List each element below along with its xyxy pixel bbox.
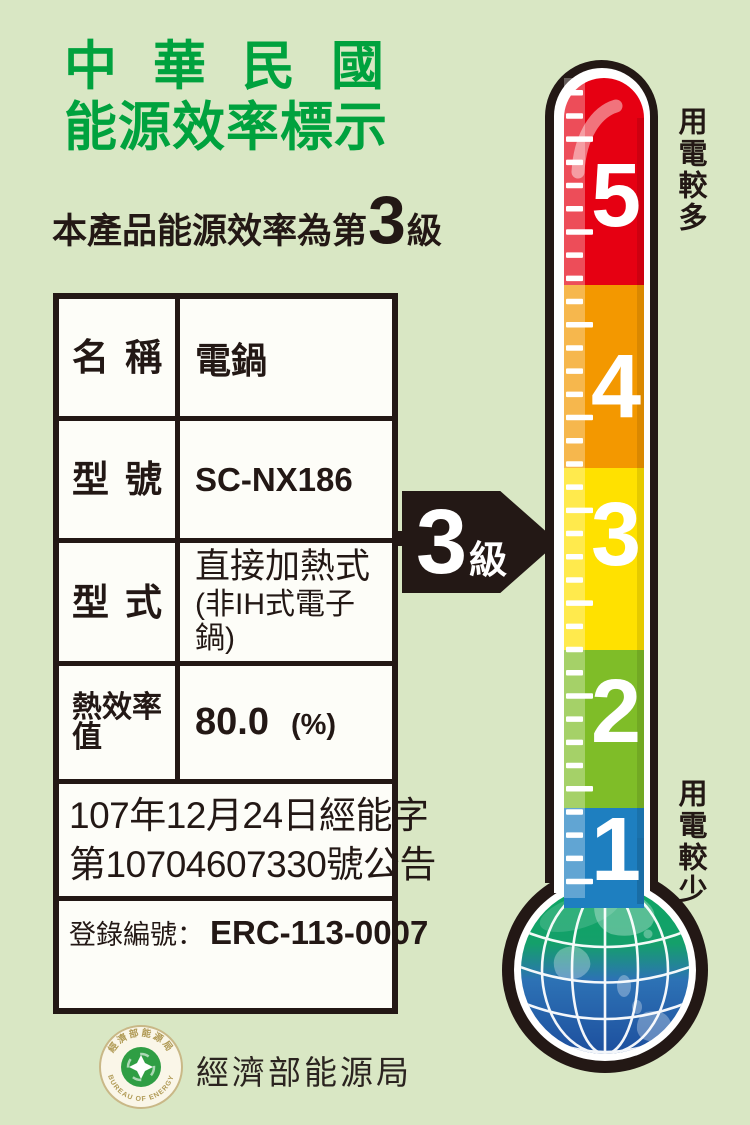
row-efficiency-unit: (%) (291, 709, 336, 742)
level-4-number: 4 (591, 337, 641, 437)
grade-arrow-number: 3 (416, 491, 467, 593)
thermometer-graphic: 5 4 3 2 1 (500, 50, 750, 1125)
grade-statement-number: 3 (368, 186, 406, 254)
grade-statement-prefix: 本產品能源效率為第 (52, 203, 367, 254)
caption-less-power: 用電較少 (669, 778, 711, 906)
neck-white-right (644, 838, 650, 893)
grade-statement-suffix: 級 (407, 203, 442, 254)
title-line1: 中華民國 (64, 36, 420, 97)
table-row-efficiency: 熱效率值 80.0 (%) (59, 666, 392, 784)
level-3-number: 3 (591, 485, 641, 585)
row-type-value-line2: (非IH式電子鍋) (195, 588, 392, 657)
grade-statement: 本產品能源效率為第 3 級 (52, 186, 442, 254)
announcement-line1: 107年12月24日經能字 (69, 792, 382, 841)
announcement-line2: 第10704607330號公告 (69, 841, 382, 890)
row-name-value: 電鍋 (195, 332, 392, 384)
agency-name: 經濟部能源局 (196, 1046, 412, 1094)
label-title: 中華民國 能源效率標示 (64, 36, 420, 159)
row-model-value: SC-NX186 (195, 461, 392, 499)
registration-label: 登錄編號： (69, 913, 204, 952)
table-row-announcement: 107年12月24日經能字 第10704607330號公告 (59, 784, 392, 901)
title-line2: 能源效率標示 (64, 97, 420, 158)
spec-table: 名稱 電鍋 型號 SC-NX186 型式 直接加熱式 (非IH式電子鍋) 熱效率… (53, 293, 398, 1014)
row-name-label: 名稱 (72, 339, 162, 376)
level-2-number: 2 (591, 662, 641, 762)
neck-white-left (554, 838, 564, 893)
row-type-label: 型式 (72, 584, 162, 621)
caption-more-power: 用電較多 (669, 106, 711, 234)
table-row-model: 型號 SC-NX186 (59, 421, 392, 543)
table-row-type: 型式 直接加熱式 (非IH式電子鍋) (59, 543, 392, 666)
table-row-registration: 登錄編號： ERC-113-0007 (59, 901, 392, 1008)
registration-number: ERC-113-0007 (210, 914, 428, 952)
bureau-seal: 經濟部能源局 BUREAU OF ENERGY (98, 1024, 184, 1110)
table-row-name: 名稱 電鍋 (59, 299, 392, 421)
row-model-label: 型號 (72, 461, 162, 498)
level-5-number: 5 (591, 146, 641, 246)
row-type-value-line1: 直接加熱式 (195, 547, 392, 587)
row-efficiency-value: 80.0 (195, 701, 269, 744)
level-1-number: 1 (591, 800, 641, 900)
energy-label: { "header": { "title_line1": "中華民國", "ti… (0, 0, 750, 1125)
row-efficiency-label: 熱效率值 (72, 693, 162, 753)
